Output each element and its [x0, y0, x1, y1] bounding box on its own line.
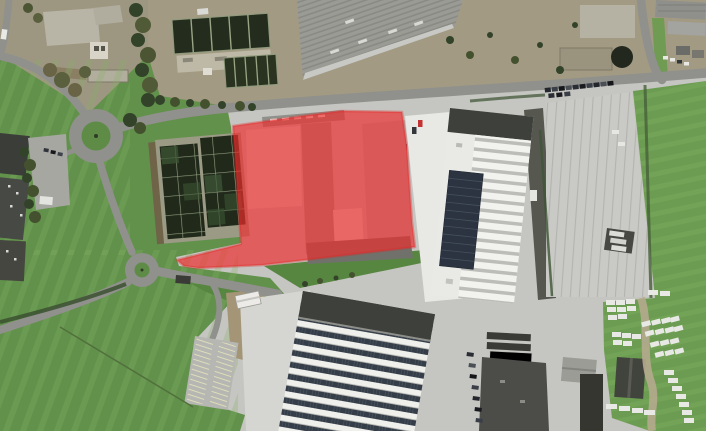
red-car — [418, 120, 423, 127]
aerial-map-canvas[interactable] — [0, 0, 706, 431]
dark-car — [412, 127, 417, 134]
roundabout-north — [69, 109, 123, 163]
warehouse-south — [278, 291, 435, 431]
white-car-scrub — [197, 8, 208, 15]
roundabout-south — [125, 253, 159, 287]
gatehouse — [175, 275, 191, 284]
